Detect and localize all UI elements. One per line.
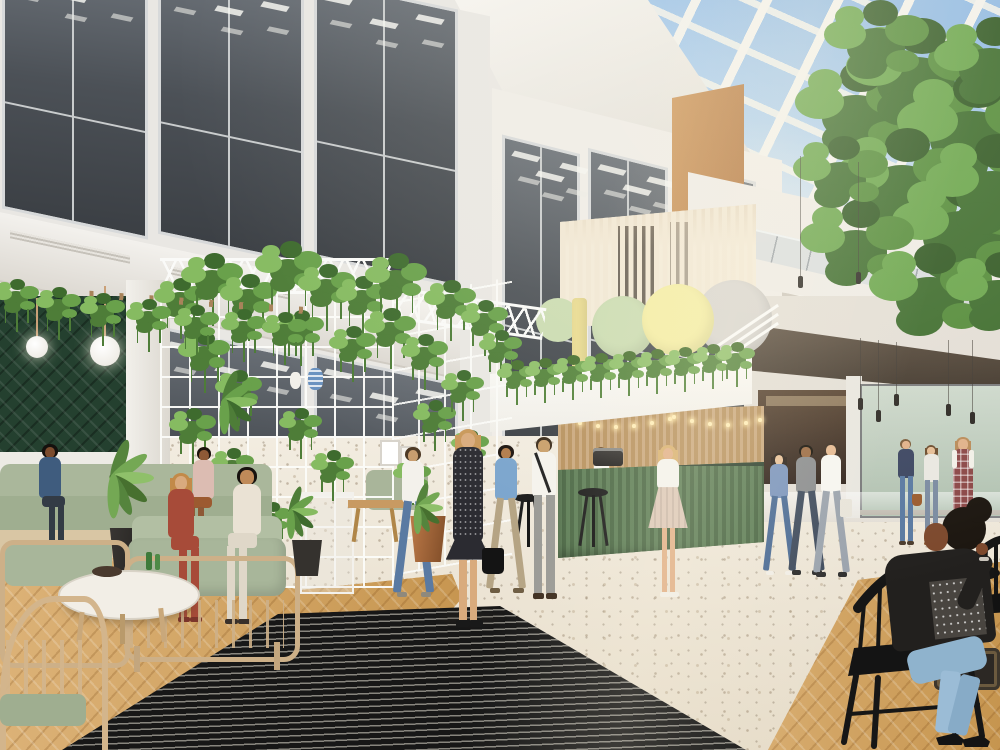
pendant-lamp — [876, 410, 881, 422]
bottle-green — [146, 552, 152, 570]
vine-strand — [437, 315, 439, 330]
string-light-bulb — [614, 425, 618, 429]
vine-strand — [137, 329, 139, 342]
pergola-vine — [83, 301, 121, 328]
pendant-lamp — [856, 272, 861, 284]
leaf-blob — [46, 310, 63, 321]
leaf-blob — [445, 373, 457, 382]
vine-strand — [311, 437, 313, 450]
vine-strand — [312, 342, 314, 356]
vine-strand — [534, 384, 536, 395]
torso — [495, 458, 517, 499]
leaf-blob — [4, 302, 21, 313]
leaf-blob — [457, 370, 471, 381]
vine-strand — [196, 335, 198, 358]
string-light-bulb — [672, 415, 676, 419]
vine-strand — [656, 375, 658, 394]
ceiling-light-streak — [647, 176, 676, 188]
ceiling-light-streak — [323, 0, 352, 5]
leaf-blob — [339, 350, 357, 362]
espresso-machine — [593, 448, 623, 466]
vine-strand — [58, 317, 60, 340]
head — [240, 470, 253, 485]
leaf — [108, 474, 120, 519]
string-light-bulb — [726, 423, 730, 427]
leaf-blob — [641, 352, 651, 360]
leaf-blob — [511, 360, 524, 370]
person-woman-polkadot-dress — [444, 429, 492, 627]
pendant-lamp — [894, 394, 899, 406]
leaf-blob — [721, 345, 731, 353]
beam-planter-plant — [720, 349, 752, 371]
vine-strand — [582, 381, 584, 392]
bar-stool-leg — [592, 495, 595, 547]
leg — [534, 495, 542, 594]
leaf-blob — [731, 342, 744, 352]
pavilion-plant — [332, 334, 372, 362]
vine-strand — [27, 309, 29, 322]
leaf-blob — [595, 353, 608, 363]
vine-strand — [180, 440, 182, 454]
office-window — [314, 0, 458, 287]
tree-canopy — [832, 17, 920, 79]
vine-strand — [462, 399, 464, 421]
vine-strand — [450, 315, 452, 341]
leaf-blob — [411, 358, 429, 370]
vine-strand — [16, 309, 18, 332]
atrium-render: 2101 Designs1Cubik StudioGFancyLiving Lt… — [0, 0, 1000, 750]
shoe — [533, 593, 544, 599]
leaf-blob — [310, 292, 332, 306]
handbag — [482, 548, 504, 574]
pendant-globe — [90, 336, 120, 366]
vine-strand — [674, 373, 676, 384]
pergola-vine — [177, 313, 215, 340]
shoe — [792, 570, 801, 575]
vine-strand — [746, 368, 748, 379]
ceiling-light-streak — [511, 151, 540, 163]
leaf-blob — [280, 241, 302, 258]
leg — [813, 490, 830, 573]
leaf-blob — [957, 258, 986, 280]
shoe — [397, 592, 408, 597]
vine-strand — [300, 437, 302, 459]
ceiling-light-streak — [261, 1, 290, 12]
leafy-plant — [407, 487, 449, 529]
pendant-cable — [800, 156, 801, 276]
vine-strand — [423, 429, 425, 442]
vine-strand — [618, 377, 620, 388]
vine-strand — [47, 317, 49, 330]
corner-chair-cushion — [0, 694, 86, 726]
leaf-blob — [418, 334, 434, 346]
leg — [546, 495, 554, 594]
vine-strand — [91, 323, 93, 336]
leaf — [287, 509, 295, 539]
leaf-blob — [388, 253, 409, 269]
torso — [898, 449, 914, 479]
vine-strand — [526, 386, 528, 397]
sofa-leg — [274, 642, 280, 670]
leaf-blob — [295, 408, 309, 419]
leafy-plant — [212, 376, 265, 429]
vine-strand — [722, 370, 724, 381]
pavilion-plant — [370, 264, 422, 300]
torso — [168, 489, 194, 538]
vine-strand — [712, 370, 714, 389]
leg — [763, 496, 778, 571]
table-leg — [120, 614, 125, 644]
pendant-cable — [948, 340, 949, 404]
person-man-messenger-bag — [525, 437, 564, 599]
ceiling-light-streak — [330, 20, 353, 29]
tree-canopy — [954, 269, 1000, 331]
vine-strand — [726, 368, 728, 379]
vine-strand — [113, 323, 115, 336]
ceiling-light-streak — [64, 13, 87, 22]
leaf-blob — [478, 300, 494, 312]
bottle-green — [155, 554, 160, 570]
leaf-blob — [956, 202, 1000, 236]
leaf-blob — [679, 347, 692, 357]
pavilion-plant — [172, 416, 212, 444]
pendant-lamp — [858, 398, 863, 410]
vine-strand — [349, 311, 351, 326]
string-light-bulb — [690, 419, 694, 423]
leaf-blob — [227, 448, 241, 459]
window-mullion — [72, 0, 74, 221]
window-transom — [5, 101, 145, 133]
torso — [233, 484, 261, 536]
pendant-lamp — [946, 404, 951, 416]
leaf-blob — [450, 392, 466, 403]
vine-strand — [364, 358, 366, 372]
shopfront-glow — [766, 396, 852, 406]
leaf-blob — [488, 352, 504, 363]
vine-strand — [273, 342, 275, 355]
leaf-blob — [863, 0, 898, 26]
ceiling-light-streak — [18, 0, 41, 2]
torso — [770, 464, 788, 498]
leaf-blob — [539, 358, 552, 368]
pendant-cable — [972, 340, 973, 412]
pergola-vine — [265, 320, 303, 347]
vine-strand — [102, 323, 104, 346]
torso — [796, 457, 816, 493]
pavilion-plant — [182, 341, 226, 372]
leaf-blob — [940, 143, 976, 171]
string-light-bulb — [650, 421, 654, 425]
leafy-plant — [280, 490, 324, 534]
leaf-blob — [184, 328, 201, 339]
shoe — [513, 588, 523, 593]
vine-strand — [646, 375, 648, 386]
leaf-blob — [429, 400, 443, 411]
office-window — [2, 0, 148, 240]
leaf — [414, 505, 422, 534]
leg — [670, 528, 675, 592]
vine-strand — [628, 377, 630, 396]
tree-canopy — [800, 152, 880, 208]
leaf-blob — [847, 52, 887, 78]
torso — [821, 455, 841, 493]
leaf-blob — [436, 306, 456, 319]
vine-strand — [600, 379, 602, 398]
vine-strand — [736, 368, 738, 387]
hand — [976, 543, 988, 555]
shoe — [669, 592, 680, 597]
sofa-leg — [134, 646, 140, 672]
vine-strand — [390, 343, 392, 369]
leaf-blob — [623, 351, 636, 361]
hair-puff — [966, 497, 992, 523]
ceiling-light-streak — [422, 39, 445, 48]
leaf-blob — [327, 450, 341, 461]
string-light-bulb — [744, 421, 748, 425]
vine-strand — [289, 437, 291, 450]
pergola-vine — [39, 295, 77, 322]
leaf-blob — [969, 304, 1000, 330]
leaf-blob — [342, 279, 356, 290]
leaf-blob — [585, 356, 595, 364]
shoe — [469, 620, 483, 627]
pavilion-plant — [482, 337, 518, 362]
pendant-cable — [896, 342, 897, 394]
leaf-blob — [886, 50, 919, 72]
vine-strand — [472, 332, 474, 346]
leaf-blob — [466, 303, 479, 313]
head — [924, 523, 948, 551]
ceiling-light-streak — [376, 40, 399, 49]
person-woman-bar-skirt — [650, 445, 686, 597]
vine-strand — [191, 367, 193, 382]
vine-strand — [332, 479, 334, 501]
pergola-vine — [129, 307, 167, 334]
tree-canopy — [936, 157, 1000, 235]
leaf-blob — [383, 308, 401, 321]
heel-shoe — [962, 735, 990, 747]
leaf-blob — [814, 184, 850, 208]
tree-canopy — [942, 36, 1000, 103]
leg — [459, 560, 467, 621]
ceiling-light-streak — [111, 13, 134, 22]
pergola-vine — [0, 287, 35, 314]
leaf-blob — [348, 302, 368, 315]
leaf-blob — [204, 253, 225, 269]
vine-strand — [436, 366, 438, 380]
person-foreground-seated-woman — [880, 495, 1000, 750]
sleeve — [969, 450, 974, 468]
vine-strand — [343, 479, 345, 492]
vine-strand — [666, 375, 668, 386]
window-transom — [317, 140, 455, 171]
torso — [657, 459, 680, 489]
leaf-blob — [495, 330, 509, 341]
ceiling-light-streak — [415, 14, 444, 25]
pendant-lamp — [970, 412, 975, 424]
shoe — [456, 620, 470, 627]
leaf-blob — [849, 182, 879, 202]
vine-strand — [562, 381, 564, 392]
torso — [39, 457, 61, 498]
leaf-blob — [975, 134, 1000, 168]
leaf-blob — [370, 311, 384, 322]
leaf-blob — [430, 283, 444, 294]
leaf-blob — [179, 432, 197, 444]
vine-strand — [702, 370, 704, 381]
ceiling-light-streak — [597, 164, 626, 176]
leaf-blob — [422, 422, 438, 433]
leaf-blob — [959, 75, 1000, 104]
leaf-blob — [319, 264, 338, 278]
leaf-blob — [406, 337, 419, 347]
vine-strand — [254, 339, 256, 352]
leaf-blob — [885, 128, 930, 162]
string-light-bulb — [632, 424, 636, 428]
leaf-blob — [320, 472, 336, 483]
leaf-blob — [557, 358, 567, 366]
vine-strand — [340, 358, 342, 372]
vine-strand — [412, 366, 414, 380]
pavilion-plant — [282, 415, 318, 440]
logo-circle-yellow — [642, 284, 714, 356]
vine-strand — [326, 302, 328, 331]
shoe — [766, 571, 775, 575]
head — [538, 440, 550, 453]
leg — [788, 491, 804, 571]
leaf-blob — [976, 17, 1000, 46]
leaf-blob — [190, 358, 210, 371]
vine-strand — [473, 399, 475, 412]
leaf-blob — [283, 411, 295, 420]
skirt — [648, 487, 688, 528]
leaf-blob — [825, 257, 868, 286]
ceiling-light-streak — [559, 163, 588, 175]
leaf-blob — [567, 355, 580, 365]
leg — [662, 528, 667, 592]
vine-strand — [489, 359, 491, 372]
leaf-blob — [803, 142, 829, 162]
shoe — [421, 592, 432, 597]
vine-strand — [148, 329, 150, 352]
leaf-blob — [613, 354, 623, 362]
leafy-plant — [97, 445, 163, 511]
vine-strand — [243, 339, 245, 362]
pendant-cable — [878, 340, 879, 410]
vine-strand — [69, 317, 71, 330]
vine-strand — [451, 399, 453, 412]
sleeve — [952, 450, 957, 468]
leaf-blob — [231, 332, 248, 343]
watch — [979, 557, 989, 561]
leaf-blob — [896, 305, 943, 336]
leaf-blob — [272, 335, 289, 346]
vine-strand — [684, 373, 686, 392]
vine-strand — [5, 309, 7, 322]
vine-strand — [284, 342, 286, 365]
vine-strand — [544, 384, 546, 403]
vine-strand — [424, 366, 426, 390]
vine-strand — [694, 373, 696, 384]
string-light-bulb — [596, 424, 600, 428]
ceiling-light-streak — [174, 7, 197, 16]
vine-strand — [610, 379, 612, 390]
leg — [470, 560, 478, 621]
ceiling-light-streak — [220, 27, 243, 36]
white-vase — [290, 372, 301, 389]
leaf-blob — [315, 453, 327, 462]
vine-strand — [352, 358, 354, 382]
vine-strand — [434, 429, 436, 451]
pendant-cable — [858, 162, 859, 272]
pavilion-plant — [444, 377, 480, 402]
vine-strand — [572, 381, 574, 400]
leaf-blob — [346, 326, 362, 338]
leaf-blob — [136, 322, 153, 333]
vine-strand — [554, 384, 556, 395]
office-window — [158, 0, 304, 265]
vine-strand — [377, 343, 379, 358]
vine-strand — [207, 335, 209, 348]
leaf-blob — [288, 430, 304, 441]
vine-strand — [185, 335, 187, 348]
leaf-blob — [417, 403, 429, 412]
leaf-blob — [483, 333, 495, 342]
vine-strand — [506, 386, 508, 397]
leaf-blob — [835, 6, 864, 28]
leaf-blob — [828, 136, 860, 160]
pendant-cable — [860, 338, 861, 398]
vine-strand — [412, 295, 414, 313]
leaf-blob — [529, 361, 539, 369]
bowl — [92, 566, 122, 577]
vine-strand — [380, 295, 382, 313]
pavilion-plant — [314, 457, 350, 482]
pavilion-plant — [404, 342, 444, 370]
window-mullion — [228, 0, 230, 246]
leaf-blob — [186, 408, 202, 420]
leaf-blob — [882, 251, 916, 277]
vine-strand — [638, 377, 640, 388]
window-transom — [161, 121, 301, 153]
vine-strand — [590, 379, 592, 390]
leaf-blob — [669, 350, 679, 358]
torso — [924, 454, 939, 482]
string-light-bulb — [668, 417, 672, 421]
pendant-globe — [26, 336, 48, 358]
leaf-blob — [697, 347, 707, 355]
leaf-blob — [379, 285, 402, 301]
vine-strand — [159, 329, 161, 342]
leaf-blob — [501, 363, 511, 371]
leaf-blob — [443, 280, 461, 293]
leaf-blob — [651, 349, 664, 359]
leaf-blob — [914, 243, 956, 274]
leaf-blob — [334, 329, 347, 339]
blue-vase — [308, 368, 323, 390]
string-light-bulb — [758, 418, 762, 422]
shoe — [546, 593, 557, 599]
head — [408, 450, 419, 462]
shoe — [816, 572, 825, 577]
ceiling-light-streak — [267, 26, 290, 35]
pergola-vine — [224, 317, 262, 344]
leaf-blob — [376, 334, 396, 347]
ceiling-light-streak — [518, 176, 541, 185]
string-light-bulb — [708, 422, 712, 426]
vine-strand — [516, 386, 518, 405]
vine-strand — [204, 367, 206, 393]
